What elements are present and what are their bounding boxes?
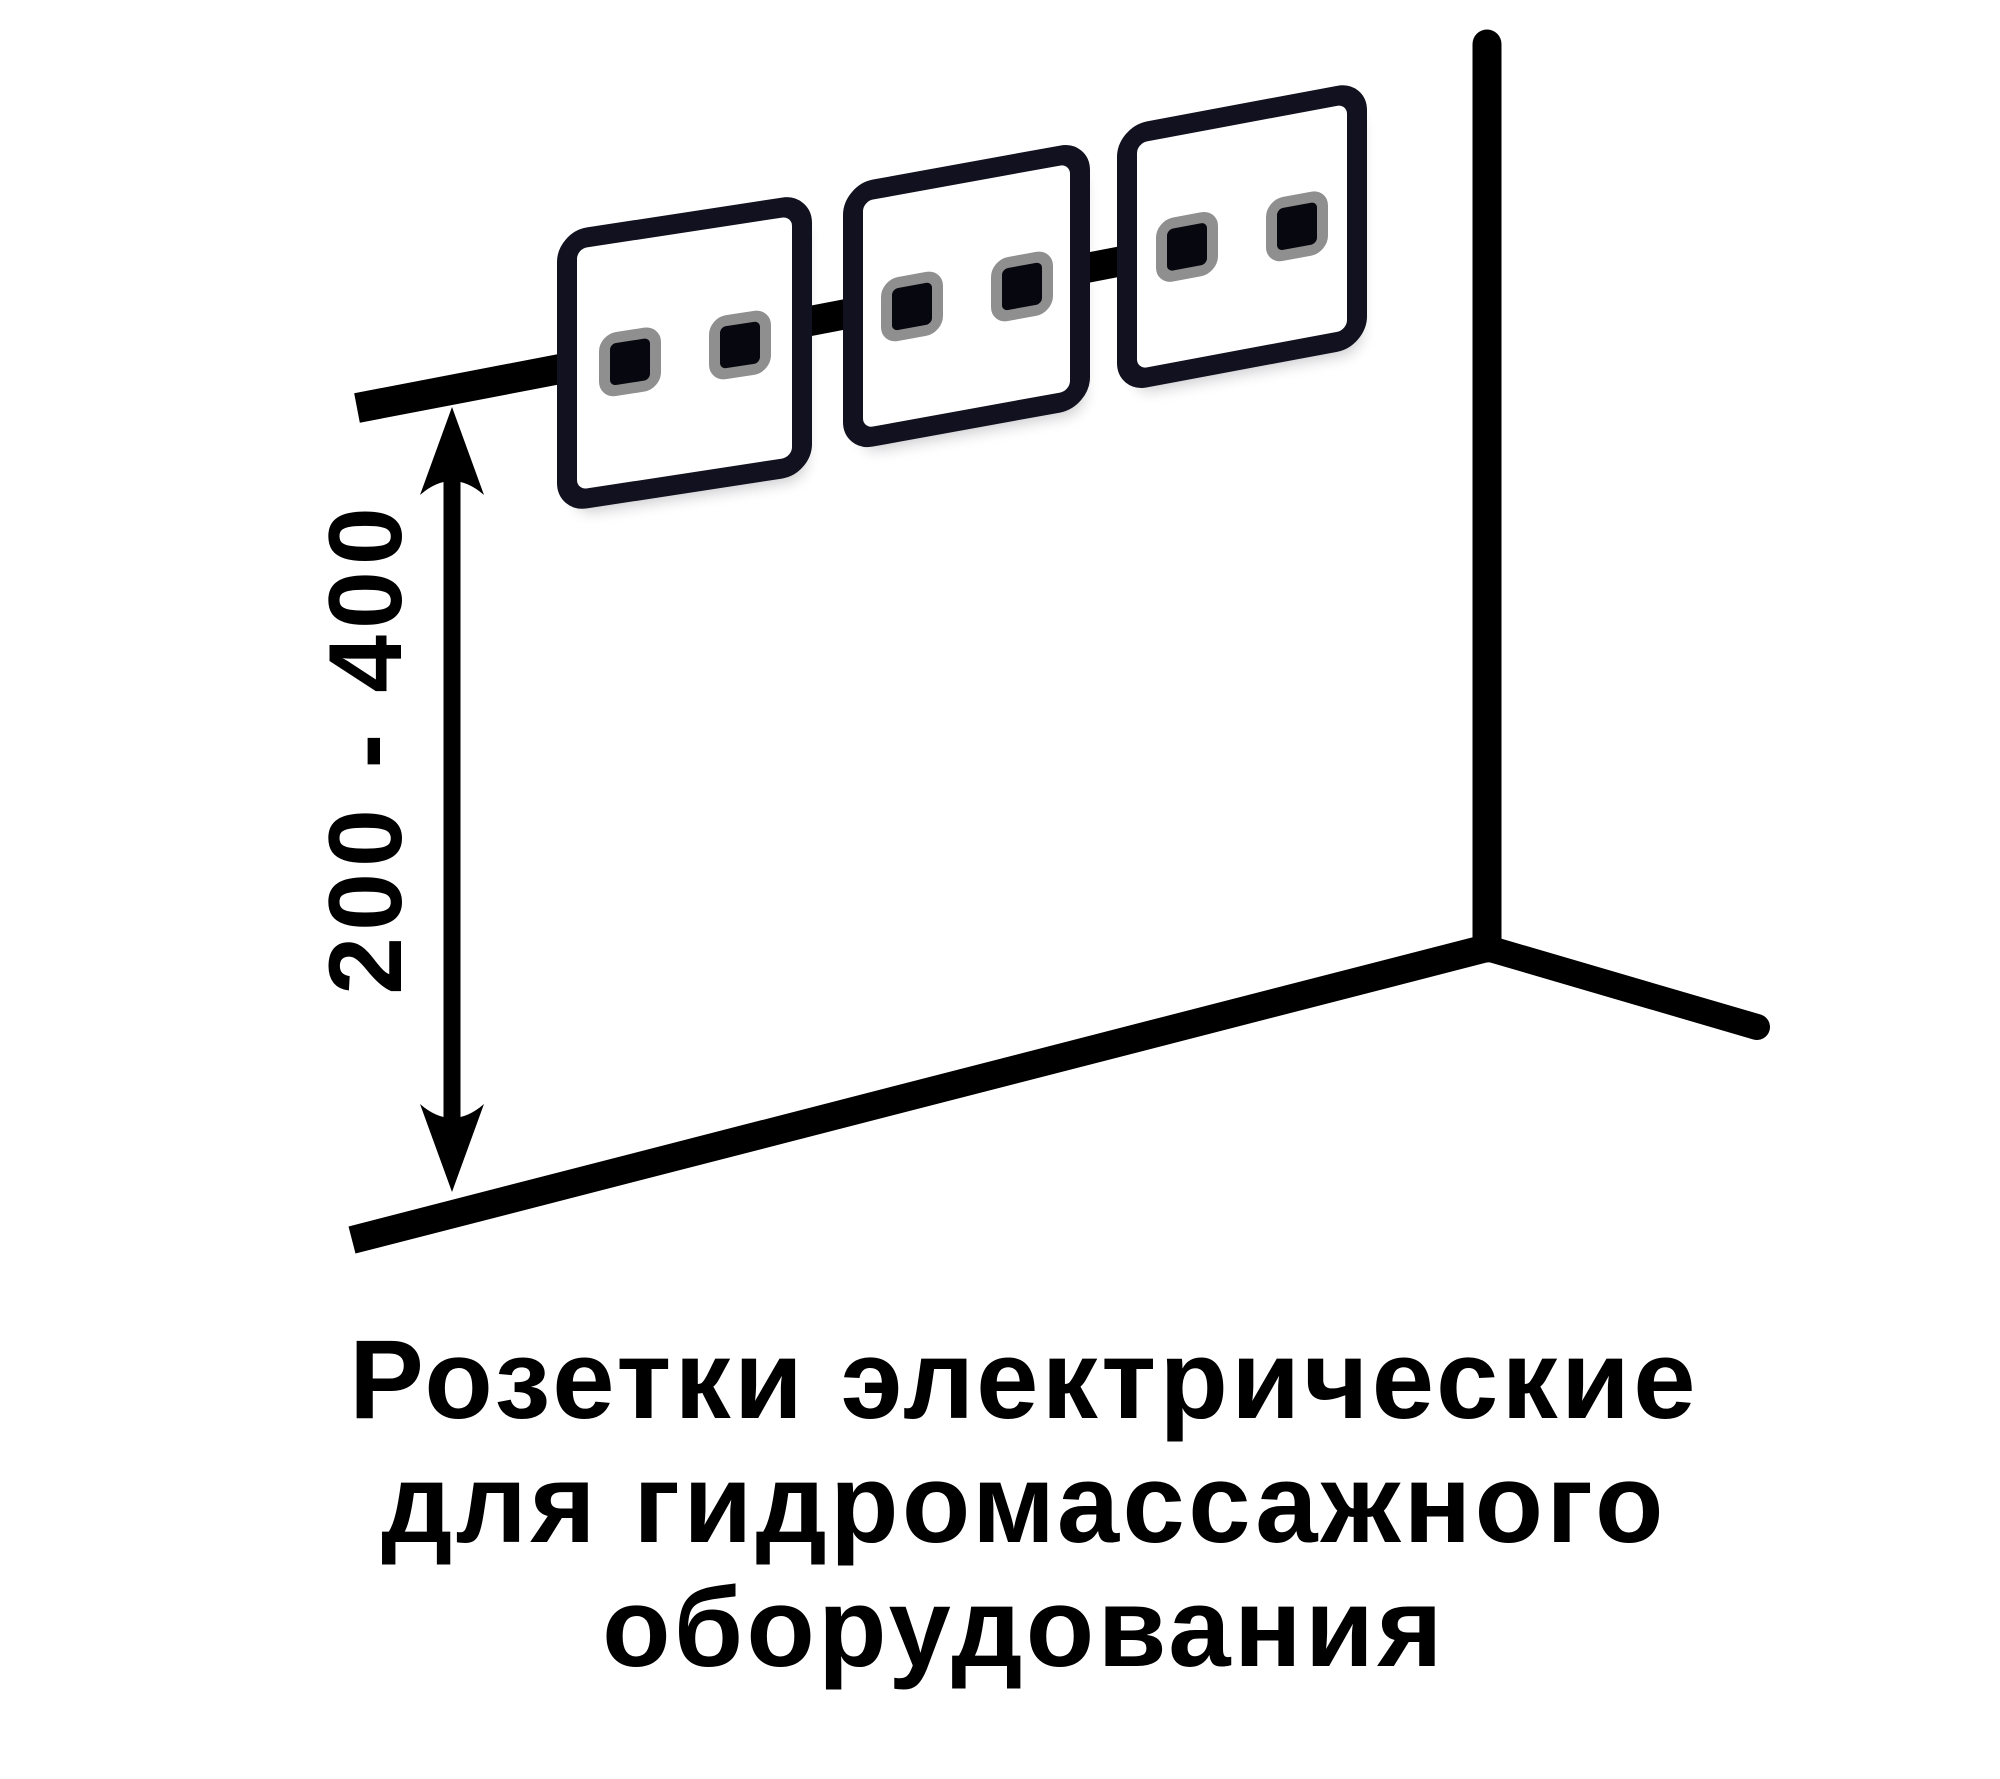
socket-hole-icon (1156, 209, 1218, 285)
power-outlet-3 (1117, 80, 1367, 393)
socket-hole-icon (599, 325, 661, 398)
floor-line-right (1487, 948, 1757, 1027)
socket-hole-icon (991, 248, 1053, 323)
dimension-arrow (420, 407, 484, 1192)
floor-corner-joint (1473, 934, 1501, 962)
caption-line-1: Розетки электрические (24, 1318, 2000, 1442)
dimension-label: 200 - 400 (306, 448, 426, 1048)
power-outlet-2 (843, 140, 1090, 452)
caption-line-3: оборудования (24, 1566, 2000, 1690)
caption-line-2: для гидромассажного (24, 1442, 2000, 1566)
socket-hole-icon (709, 308, 771, 381)
socket-hole-icon (881, 268, 943, 343)
floor-line-left (352, 948, 1487, 1240)
diagram-canvas: 200 - 400 Розетки электрические для гидр… (0, 0, 2000, 1779)
caption: Розетки электрические для гидромассажног… (24, 1318, 2000, 1690)
socket-hole-icon (1266, 189, 1328, 265)
power-outlet-1 (557, 193, 812, 513)
